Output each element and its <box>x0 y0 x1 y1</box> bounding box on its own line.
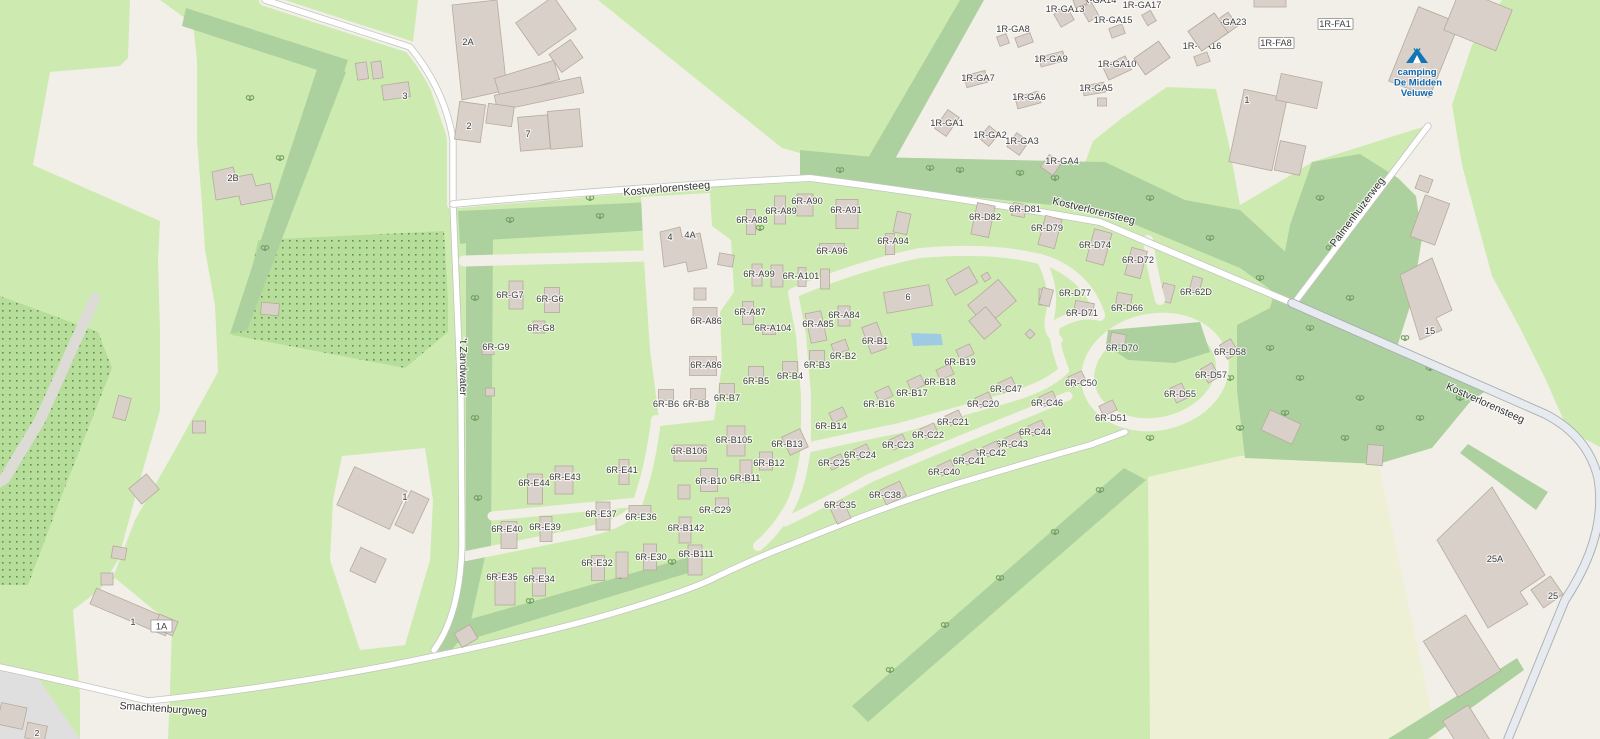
svg-text:6R-D55: 6R-D55 <box>1164 389 1196 399</box>
svg-text:25: 25 <box>1548 591 1558 601</box>
svg-text:6R-C23: 6R-C23 <box>882 440 914 450</box>
svg-text:6R-B16: 6R-B16 <box>863 399 895 409</box>
svg-text:1: 1 <box>402 492 407 502</box>
svg-text:6R-E37: 6R-E37 <box>585 509 617 519</box>
svg-text:6R-A96: 6R-A96 <box>816 246 848 256</box>
svg-text:6R-A104: 6R-A104 <box>755 323 792 333</box>
svg-text:6R-D72: 6R-D72 <box>1122 255 1154 265</box>
svg-text:15: 15 <box>1425 326 1435 336</box>
svg-text:6R-A86: 6R-A86 <box>690 360 722 370</box>
svg-text:6R-D77: 6R-D77 <box>1059 288 1091 298</box>
svg-text:6R-E39: 6R-E39 <box>529 522 561 532</box>
svg-text:6R-E41: 6R-E41 <box>606 465 638 475</box>
svg-text:1R-GA9: 1R-GA9 <box>1034 54 1068 64</box>
svg-text:6R-C35: 6R-C35 <box>824 500 856 510</box>
svg-text:6R-A88: 6R-A88 <box>736 215 768 225</box>
svg-text:6R-D66: 6R-D66 <box>1111 303 1143 313</box>
svg-text:1R-GA5: 1R-GA5 <box>1079 83 1113 93</box>
svg-text:1R-GA6: 1R-GA6 <box>1012 92 1046 102</box>
svg-text:1: 1 <box>1244 95 1249 105</box>
svg-text:6R-B14: 6R-B14 <box>815 421 847 431</box>
svg-text:6R-G9: 6R-G9 <box>482 342 509 352</box>
svg-text:1R-GA7: 1R-GA7 <box>961 73 995 83</box>
svg-text:6R-D71: 6R-D71 <box>1066 308 1098 318</box>
svg-text:6R-D81: 6R-D81 <box>1009 204 1041 214</box>
svg-text:6R-D82: 6R-D82 <box>969 212 1001 222</box>
svg-text:6R-E34: 6R-E34 <box>523 574 555 584</box>
svg-text:6R-B17: 6R-B17 <box>896 388 928 398</box>
svg-text:6R-C24: 6R-C24 <box>844 450 876 460</box>
svg-text:6R-A86: 6R-A86 <box>690 316 722 326</box>
svg-text:1R-GA1: 1R-GA1 <box>930 118 964 128</box>
svg-text:6R-D57: 6R-D57 <box>1195 370 1227 380</box>
svg-text:6R-A90: 6R-A90 <box>791 196 823 206</box>
svg-text:4A: 4A <box>684 230 696 240</box>
svg-text:6R-62D: 6R-62D <box>1180 287 1212 297</box>
svg-text:6R-B111: 6R-B111 <box>678 549 713 559</box>
svg-text:6R-E44: 6R-E44 <box>518 478 550 488</box>
svg-text:6R-E32: 6R-E32 <box>581 558 613 568</box>
svg-text:6R-A99: 6R-A99 <box>743 269 775 279</box>
svg-text:6R-A89: 6R-A89 <box>765 206 797 216</box>
svg-text:6: 6 <box>905 292 910 302</box>
svg-text:1R-GA15: 1R-GA15 <box>1094 15 1133 25</box>
svg-text:1R-GA8: 1R-GA8 <box>996 24 1030 34</box>
svg-text:1R-FA1: 1R-FA1 <box>1319 19 1351 29</box>
svg-text:1R-FA8: 1R-FA8 <box>1260 38 1292 48</box>
svg-text:25A: 25A <box>1487 554 1504 564</box>
svg-text:6R-C47: 6R-C47 <box>990 384 1022 394</box>
svg-text:6R-C46: 6R-C46 <box>1031 398 1063 408</box>
svg-text:6R-B18: 6R-B18 <box>924 377 956 387</box>
svg-text:6R-C41: 6R-C41 <box>953 456 985 466</box>
svg-text:6R-A91: 6R-A91 <box>830 205 862 215</box>
svg-text:6R-B6: 6R-B6 <box>653 399 679 409</box>
svg-text:3: 3 <box>402 91 407 101</box>
svg-text:1R-GA10: 1R-GA10 <box>1098 59 1137 69</box>
svg-text:1R-GA2: 1R-GA2 <box>973 130 1007 140</box>
svg-text:6R-B105: 6R-B105 <box>716 435 753 445</box>
svg-text:1R-GA4: 1R-GA4 <box>1045 156 1079 166</box>
svg-text:1: 1 <box>130 617 135 627</box>
svg-text:6R-B4: 6R-B4 <box>777 371 803 381</box>
svg-text:6R-C29: 6R-C29 <box>699 505 731 515</box>
svg-text:6R-G7: 6R-G7 <box>496 290 523 300</box>
svg-text:6R-E36: 6R-E36 <box>625 512 657 522</box>
svg-text:1R-GA3: 1R-GA3 <box>1005 136 1039 146</box>
svg-text:6R-E35: 6R-E35 <box>486 572 518 582</box>
svg-text:6R-E30: 6R-E30 <box>635 552 667 562</box>
svg-text:7: 7 <box>525 129 530 139</box>
svg-text:6R-B7: 6R-B7 <box>714 393 740 403</box>
svg-text:6R-B106: 6R-B106 <box>671 446 708 456</box>
svg-text:6R-C44: 6R-C44 <box>1019 427 1051 437</box>
svg-text:6R-B13: 6R-B13 <box>771 439 803 449</box>
svg-text:6R-G8: 6R-G8 <box>527 323 554 333</box>
svg-text:6R-C50: 6R-C50 <box>1065 378 1097 388</box>
svg-text:’t Zandwater: ’t Zandwater <box>457 338 469 396</box>
svg-text:6R-D74: 6R-D74 <box>1079 240 1111 250</box>
svg-text:6R-C22: 6R-C22 <box>912 430 944 440</box>
svg-text:6R-B2: 6R-B2 <box>830 351 856 361</box>
svg-text:6R-B11: 6R-B11 <box>730 473 761 483</box>
svg-text:2: 2 <box>35 728 40 738</box>
svg-text:6R-E43: 6R-E43 <box>549 472 581 482</box>
svg-text:6R-A101: 6R-A101 <box>783 271 820 281</box>
svg-text:6R-C40: 6R-C40 <box>928 467 960 477</box>
svg-text:6R-A85: 6R-A85 <box>802 319 834 329</box>
svg-text:6R-B3: 6R-B3 <box>804 360 830 370</box>
svg-text:6R-E40: 6R-E40 <box>491 524 523 534</box>
svg-text:6R-G6: 6R-G6 <box>536 294 563 304</box>
svg-text:6R-B10: 6R-B10 <box>695 476 727 486</box>
svg-text:6R-C20: 6R-C20 <box>967 399 999 409</box>
svg-text:camping: camping <box>1397 67 1436 78</box>
svg-text:6R-B8: 6R-B8 <box>683 399 709 409</box>
svg-text:6R-C38: 6R-C38 <box>869 490 901 500</box>
svg-text:Veluwe: Veluwe <box>1401 88 1433 99</box>
svg-text:6R-B12: 6R-B12 <box>753 458 785 468</box>
svg-text:6R-B142: 6R-B142 <box>668 523 705 533</box>
svg-text:6R-B1: 6R-B1 <box>862 336 888 346</box>
svg-text:6R-D51: 6R-D51 <box>1095 413 1127 423</box>
svg-text:1A: 1A <box>156 622 168 632</box>
svg-text:6R-A94: 6R-A94 <box>877 236 909 246</box>
svg-text:6R-A87: 6R-A87 <box>734 307 766 317</box>
svg-text:2B: 2B <box>227 173 238 183</box>
svg-text:4: 4 <box>667 232 672 242</box>
svg-text:6R-B5: 6R-B5 <box>743 376 769 386</box>
svg-text:6R-D70: 6R-D70 <box>1106 343 1138 353</box>
svg-text:6R-D79: 6R-D79 <box>1031 223 1063 233</box>
svg-text:2A: 2A <box>462 37 474 47</box>
svg-text:2: 2 <box>466 121 471 131</box>
svg-text:6R-C21: 6R-C21 <box>937 417 969 427</box>
svg-text:De Midden: De Midden <box>1394 78 1442 89</box>
svg-text:1R-GA17: 1R-GA17 <box>1123 0 1162 10</box>
svg-text:6R-D58: 6R-D58 <box>1214 347 1246 357</box>
